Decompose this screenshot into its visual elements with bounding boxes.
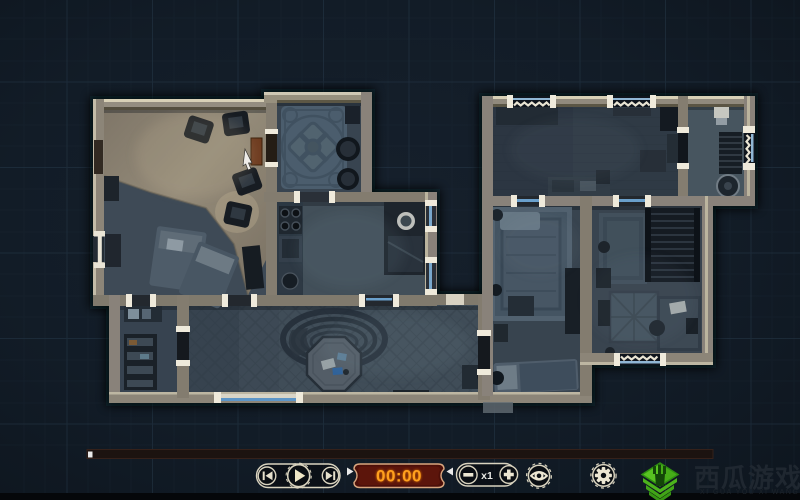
svg-text:00:00: 00:00 [376, 467, 422, 486]
svg-text:XI GUA YOU XI WANG: XI GUA YOU XI WANG [700, 489, 799, 496]
svg-text:x1: x1 [481, 470, 493, 482]
